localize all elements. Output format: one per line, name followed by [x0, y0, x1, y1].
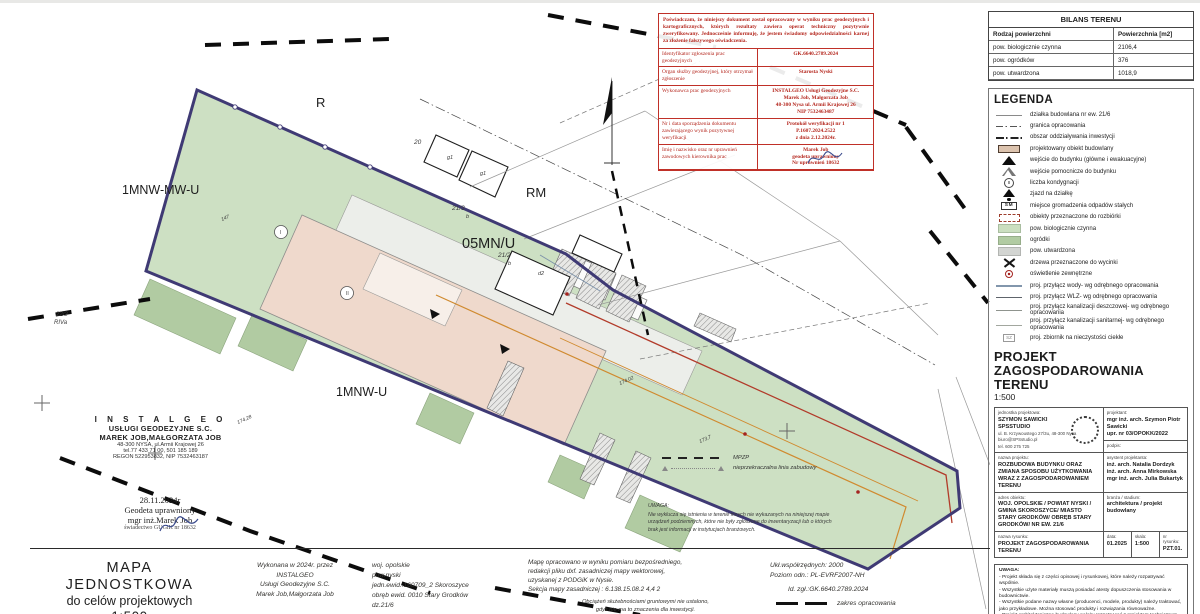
drawing-number: PZT.01. — [1163, 546, 1184, 553]
legend-item: proj. przyłącz wody- wg odrębnego opraco… — [994, 281, 1188, 291]
footer-location-line: obręb ewid. 0010 Stary Grodków — [372, 591, 522, 601]
legend-item-label: obiekty przeznaczone do rozbiórki — [1030, 214, 1121, 221]
footer-location-line: jedn.ewid.:160709_2 Skoroszyce — [372, 581, 522, 591]
title-block-row: nazwa rysunku: PROJEKT ZAGOSPODAROWANIA … — [995, 532, 1187, 556]
map-label: II — [346, 291, 349, 297]
legend-item-label: proj. przyłącz kanalizacji sanitarnej- w… — [1030, 318, 1188, 331]
footer-method: Mapę opracowano w wyniku pomiaru bezpośr… — [528, 559, 763, 614]
project-title: PROJEKT ZAGOSPODAROWANIA TERENU — [994, 350, 1188, 391]
legend-item-label: proj. przyłącz wody- wg odrębnego opraco… — [1030, 283, 1158, 290]
map-label: 21/2 — [497, 252, 511, 259]
footer-divider — [30, 548, 990, 549]
legend-item-label: projektowany obiekt budowlany — [1030, 146, 1113, 153]
north-arrow — [603, 77, 620, 165]
stamp-row-value: INSTALGEO Usługi Geodezyjne S.C. Marek J… — [758, 86, 873, 118]
drawing-meta-cells: data: 01.2025 skala: 1:500 nr rysunku: P… — [1104, 532, 1187, 556]
cell-label: nazwa projektu: — [998, 455, 1100, 460]
legend-item: projektowany obiekt budowlany — [994, 144, 1188, 154]
legend-item: działka budowlana nr ew. 21/6 — [994, 110, 1188, 120]
footer-title-line: 1:500 — [42, 609, 217, 614]
studio-stamp-logo — [1071, 416, 1099, 444]
uwaga-note-line: Wszystkie użyte materiały muszą posiadać… — [999, 588, 1183, 601]
instalgeo-line: USŁUGI GEODEZYJNE S.C. — [58, 424, 263, 433]
designer-cell: projektant: mgr inż. arch. Szymon Piotr … — [1104, 408, 1187, 452]
legend-item-label: proj. zbiornik na nieczystości ciekłe — [1030, 335, 1123, 342]
bilans-cell-area: 376 — [1114, 54, 1193, 66]
footer-executor-line: Wykonana w 2024r. przez — [225, 561, 365, 571]
legend-symbol-icon — [994, 320, 1024, 330]
bilans-cell-type: pow. utwardzona — [989, 67, 1114, 79]
assistant-name: inż. arch. Natalia Dordzyk — [1107, 462, 1184, 469]
stamp-row-label: Wykonawca prac geodezyjnych — [659, 86, 758, 118]
legend-item-label: drzewa przeznaczone do wycinki — [1030, 260, 1118, 267]
legend-item-label: proj. przyłącz kanalizacji deszczowej- w… — [1030, 304, 1188, 317]
legend-and-titleblock: LEGENDA działka budowlana nr ew. 21/6 gr… — [988, 88, 1194, 614]
surveyor-line: świadectwo GUGiK nr 18632 — [70, 525, 250, 531]
footer-executor-line: INSTALGEO — [225, 571, 365, 581]
inmap-legend-row: MPZP — [662, 455, 932, 461]
legend-item-label: miejsce gromadzenia odpadów stałych — [1030, 203, 1133, 210]
footer-method-line: Mapę opracowano w wyniku pomiaru bezpośr… — [528, 559, 763, 568]
inmap-note: UWAGA: Nie wyklucza się istnienia w tere… — [648, 503, 948, 534]
title-block-row: adres obiektu: WOJ. OPOLSKIE / POWIAT NY… — [995, 493, 1187, 532]
right-panel: BILANS TERENU Rodzaj powierzchni Powierz… — [988, 11, 1194, 613]
legend-symbol-icon — [994, 224, 1024, 234]
legend-item: pow. biologicznie czynna — [994, 224, 1188, 234]
map-label: 22/2 — [55, 312, 68, 318]
map-label: d2 — [538, 271, 544, 277]
verification-stamp: Poświadczam, że niniejszy dokument zosta… — [658, 13, 874, 171]
stamp-row-label: Identyfikator zgłoszenia prac geodezyjny… — [659, 49, 758, 67]
legend-item: proj. przyłącz WLZ- wg odrębnego opracow… — [994, 292, 1188, 302]
uwaga-title: UWAGA: — [999, 568, 1183, 574]
bilans-cell-area: 2106,4 — [1114, 41, 1193, 53]
bilans-header-row: Rodzaj powierzchni Powierzchnia [m2] — [989, 28, 1193, 41]
legend-symbol-icon — [994, 121, 1024, 131]
stamp-row-value: Marek Job geodeta uprawniony Nr uprawnie… — [758, 145, 873, 170]
map-label: 21/3 — [451, 205, 465, 212]
title-block-row: nazwa projektu: ROZBUDOWA BUDYNKU ORAZ Z… — [995, 453, 1187, 492]
instalgeo-line: MAREK JOB,MAŁGORZATA JOB — [58, 433, 263, 442]
footer-method-line: redakcji pliku dxf. zasadniczej mapy wek… — [528, 568, 763, 577]
map-label: I — [280, 230, 281, 236]
stamp-row: Imię i nazwisko oraz nr uprawnień zawodo… — [659, 145, 873, 171]
design-unit-cell: jednostka projektowa: SZYMON SAWICKI SPS… — [995, 408, 1104, 452]
legend-item: pow. utwardzona — [994, 247, 1188, 257]
legend-item: wejście do budynku (główne i ewakuacyjne… — [994, 156, 1188, 166]
map-label: b — [508, 261, 511, 267]
uwaga-note-line: Projekt składa się z części opisowej i r… — [999, 575, 1183, 588]
map-label: RM — [526, 185, 546, 200]
inmap-note-line: Nie wyklucza się istnienia w terenie inn… — [648, 512, 948, 520]
drawing-scale: 1:500 — [1135, 541, 1156, 548]
drawing-date: 01.2025 — [1107, 541, 1128, 548]
legend-item: obiekty przeznaczone do rozbiórki — [994, 213, 1188, 223]
object-address: WOJ. OPOLSKIE / POWIAT NYSKI / GMINA SKO… — [998, 501, 1100, 529]
project-name: ROZBUDOWA BUDYNKU ORAZ ZMIANA SPOSOBU UŻ… — [998, 462, 1100, 490]
surveyor-line: mgr inż.Marek Job — [70, 515, 250, 525]
stamp-row-value: Starosta Nyski — [758, 67, 873, 85]
legend-item-label: proj. przyłącz WLZ- wg odrębnego opracow… — [1030, 294, 1157, 301]
legend-symbol-icon — [994, 110, 1024, 120]
surveyor-line: 28.11.2024r — [70, 495, 250, 505]
legend-item-label: wejście pomocnicze do budynku — [1030, 169, 1116, 176]
footer-location-line: pow.nyski — [372, 571, 522, 581]
legend-symbol-icon — [994, 292, 1024, 302]
bilans-title: BILANS TERENU — [989, 12, 1193, 28]
stamp-row-label: Imię i nazwisko oraz nr uprawnień zawodo… — [659, 145, 758, 170]
map-label: 1MNW-U — [336, 385, 387, 399]
footer-servitude-note: Obciążeń służebnościami gruntowymi nie u… — [528, 599, 763, 614]
footer-method-line: uzyskanej z PODGiK w Nysie. — [528, 577, 763, 586]
legend-item-label: pow. biologicznie czynna — [1030, 226, 1096, 233]
legend-item-label: działka budowlana nr ew. 21/6 — [1030, 112, 1110, 119]
legend-item: II liczba kondygnacji — [994, 178, 1188, 188]
branch-stage: architektura / projekt budowlany — [1107, 501, 1184, 515]
instalgeo-line: REGON 522953832, NIP 7532463187 — [58, 454, 263, 460]
bilans-col-header: Rodzaj powierzchni — [989, 28, 1114, 40]
map-label: R — [316, 95, 325, 110]
legend-symbol-icon — [994, 156, 1024, 166]
legend-symbol-icon — [994, 133, 1024, 143]
legend-item: proj. przyłącz kanalizacji sanitarnej- w… — [994, 318, 1188, 331]
title-block: jednostka projektowa: SZYMON SAWICKI SPS… — [994, 407, 1188, 557]
legend-item: proj. przyłącz kanalizacji deszczowej- w… — [994, 304, 1188, 317]
map-label: 20 — [413, 139, 422, 146]
footer-map-title: MAPA JEDNOSTKOWA do celów projektowych 1… — [42, 559, 217, 614]
cell-label: nazwa rysunku: — [998, 534, 1100, 539]
map-label: 1MNW-MW-U — [122, 183, 199, 197]
object-address-cell: adres obiektu: WOJ. OPOLSKIE / POWIAT NY… — [995, 493, 1104, 531]
footer-extent-legend: zakres opracowania — [776, 599, 980, 609]
branch-cell: branża / stadium: architektura / projekt… — [1104, 493, 1187, 531]
legend-symbol-icon — [994, 305, 1024, 315]
stamp-row: Nr i data sporządzenia dokumentu zawiera… — [659, 119, 873, 145]
inmap-legend: MPZP nieprzekraczalna linia zabudowy — [662, 455, 932, 475]
footer-executor: Wykonana w 2024r. przez INSTALGEO Usługi… — [225, 561, 365, 599]
map-sheet: RRM05MN/U1MNW-MW-U1MNW-U2021/3b21/2b22/2… — [0, 0, 1200, 614]
instalgeo-block: I N S T A L G E O USŁUGI GEODEZYJNE S.C.… — [58, 415, 263, 460]
cell-label: nr rysunku: — [1163, 534, 1184, 544]
map-label: g1 — [480, 171, 486, 177]
inmap-note-title: UWAGA: — [648, 503, 948, 511]
designer-name: mgr inż. arch. Szymon Piotr Sawicki — [1107, 417, 1184, 431]
surveyor-line: Geodeta uprawniony — [70, 505, 250, 515]
footer-coordinates: Ukł.współrzędnych: 2000 Poziom odn.: PL-… — [770, 561, 980, 609]
legend-item-label: ogródki — [1030, 237, 1050, 244]
inmap-legend-label: MPZP — [733, 455, 749, 461]
stamp-row-label: Organ służby geodezyjnej, który otrzymał… — [659, 67, 758, 85]
bilans-terenu-table: BILANS TERENU Rodzaj powierzchni Powierz… — [988, 11, 1194, 81]
table-row: pow. biologicznie czynna 2106,4 — [989, 41, 1193, 54]
footer-executor-line: Marek Job,Małgorzata Job — [225, 590, 365, 600]
title-block-row: jednostka projektowa: SZYMON SAWICKI SPS… — [995, 408, 1187, 453]
legend-symbol-icon — [994, 167, 1024, 177]
legend-symbol-icon: SM — [994, 201, 1024, 211]
assistants-cell: asystent projektanta: inż. arch. Natalia… — [1104, 453, 1187, 491]
cell-label: skala: — [1135, 534, 1156, 539]
inmap-note-line: urządzeń podziemnych, które nie były zgł… — [648, 519, 948, 527]
legend-symbol-icon — [994, 269, 1024, 279]
legend-item: SM miejsce gromadzenia odpadów stałych — [994, 201, 1188, 211]
bilans-col-header: Powierzchnia [m2] — [1114, 28, 1193, 40]
project-name-cell: nazwa projektu: ROZBUDOWA BUDYNKU ORAZ Z… — [995, 453, 1104, 491]
inmap-legend-label: nieprzekraczalna linia zabudowy — [733, 465, 816, 471]
instalgeo-line: I N S T A L G E O — [58, 415, 263, 424]
legend-item-label: zjazd na działkę — [1030, 191, 1073, 198]
extent-label: zakres opracowania — [837, 599, 896, 609]
uwaga-note-line: Wszystkie podane nazwy własne (producenc… — [999, 600, 1183, 613]
cell-label: jednostka projektowa: — [998, 410, 1100, 415]
footer-servitude-line: gdyż nie ma to znaczenia dla inwestycji. — [528, 607, 763, 614]
stamp-row: Identyfikator zgłoszenia prac geodezyjny… — [659, 49, 873, 68]
drawing-name: PROJEKT ZAGOSPODAROWANIA TERENU — [998, 541, 1100, 555]
footer-location-line: woj. opolskie — [372, 561, 522, 571]
footer-coordinate-line: Ukł.współrzędnych: 2000 — [770, 561, 980, 571]
stamp-row-value: Protokół weryfikacji nr 1 P.1607.2024.25… — [758, 119, 873, 144]
footer-coordinate-line: Poziom odn.: PL-EVRF2007-NH — [770, 571, 980, 581]
dashed-line-icon — [662, 457, 724, 459]
footer-executor-line: Usługi Geodezyjne S.C. — [225, 580, 365, 590]
legend-symbol-icon — [994, 235, 1024, 245]
signature-label: podpis: — [1107, 443, 1184, 448]
extent-dash-icon — [776, 602, 798, 605]
legend-item: drzewa przeznaczone do wycinki — [994, 258, 1188, 268]
legend-item-label: wejście do budynku (główne i ewakuacyjne… — [1030, 157, 1146, 164]
map-label: 05MN/U — [462, 236, 515, 252]
footer-report-id: Id. zgł.:GK.6640.2789.2024 — [788, 585, 980, 595]
extent-dash-icon — [805, 602, 827, 605]
footer-location-line: dz.21/6 — [372, 601, 522, 611]
legend-symbol-icon — [994, 281, 1024, 291]
assistant-name: mgr inż. arch. Julia Bukartyk — [1107, 476, 1184, 483]
stamp-statement: Poświadczam, że niniejszy dokument zosta… — [659, 14, 873, 49]
legend-item-label: oświetlenie zewnętrzne — [1030, 271, 1092, 278]
legend-symbol-icon — [994, 258, 1024, 268]
stamp-row-label: Nr i data sporządzenia dokumentu zawiera… — [659, 119, 758, 144]
table-row: pow. utwardzona 1018,9 — [989, 67, 1193, 80]
legend-item: SZ proj. zbiornik na nieczystości ciekłe — [994, 333, 1188, 343]
legend-item: wejście pomocnicze do budynku — [994, 167, 1188, 177]
legend-symbol-icon — [994, 213, 1024, 223]
footer-title-line: MAPA JEDNOSTKOWA — [45, 559, 215, 593]
stamp-row: Organ służby geodezyjnej, który otrzymał… — [659, 67, 873, 86]
designer-license: upr. nr 03/OPOKK/2022 — [1107, 431, 1184, 438]
cell-label: adres obiektu: — [998, 495, 1100, 500]
design-unit-phone: tel. 600 275 725 — [998, 444, 1100, 449]
footer-method-line: Sekcja mapy zasadniczej : 6.138.15.08.2 … — [528, 586, 763, 595]
legend-symbol-icon: II — [994, 178, 1024, 188]
assistant-name: inż. arch. Anna Mirkowska — [1107, 469, 1184, 476]
project-scale: 1:500 — [994, 392, 1188, 402]
map-label: RIVa — [54, 320, 68, 326]
legend-symbol-icon — [994, 247, 1024, 257]
cell-label: projektant: — [1107, 410, 1184, 415]
legend-item: obszar oddziaływania inwestycji — [994, 133, 1188, 143]
legend-symbol-icon — [994, 190, 1024, 200]
legend-title: LEGENDA — [994, 94, 1188, 106]
inmap-legend-row: nieprzekraczalna linia zabudowy — [662, 465, 932, 471]
cell-label: data: — [1107, 534, 1128, 539]
legend-item-label: obszar oddziaływania inwestycji — [1030, 134, 1115, 141]
drawing-name-cell: nazwa rysunku: PROJEKT ZAGOSPODAROWANIA … — [995, 532, 1104, 556]
stamp-row-value: GK.6640.2789.2024 — [758, 49, 873, 67]
legend-item-label: pow. utwardzona — [1030, 248, 1075, 255]
legend-item-label: granica opracowania — [1030, 123, 1085, 130]
legend-symbol-icon — [994, 144, 1024, 154]
surveyor-block: 28.11.2024r Geodeta uprawniony mgr inż.M… — [70, 495, 250, 531]
cell-label: branża / stadium: — [1107, 495, 1184, 500]
cell-label: asystent projektanta: — [1107, 455, 1184, 460]
footer-location: woj. opolskie pow.nyski jedn.ewid.:16070… — [372, 561, 522, 610]
legend-item: granica opracowania — [994, 121, 1188, 131]
footer-servitude-line: Obciążeń służebnościami gruntowymi nie u… — [528, 599, 763, 607]
legend-symbol-icon: SZ — [994, 333, 1024, 343]
stamp-row: Wykonawca prac geodezyjnych INSTALGEO Us… — [659, 86, 873, 119]
footer-title-line: do celów projektowych — [42, 594, 217, 608]
legend-item: oświetlenie zewnętrzne — [994, 269, 1188, 279]
map-label: b — [466, 214, 469, 220]
bilans-cell-type: pow. biologicznie czynna — [989, 41, 1114, 53]
legend-item: zjazd na działkę — [994, 190, 1188, 200]
map-label: g1 — [447, 155, 453, 161]
legend-item: ogródki — [994, 235, 1188, 245]
bilans-cell-type: pow. ogródków — [989, 54, 1114, 66]
setback-line-icon — [662, 466, 724, 471]
bilans-cell-area: 1018,9 — [1114, 67, 1193, 79]
inmap-note-line: brak jest informacji w instytucjach bran… — [648, 527, 948, 535]
table-row: pow. ogródków 376 — [989, 54, 1193, 67]
legend-item-label: liczba kondygnacji — [1030, 180, 1079, 187]
uwaga-notes: UWAGA: Projekt składa się z części opiso… — [994, 564, 1188, 614]
